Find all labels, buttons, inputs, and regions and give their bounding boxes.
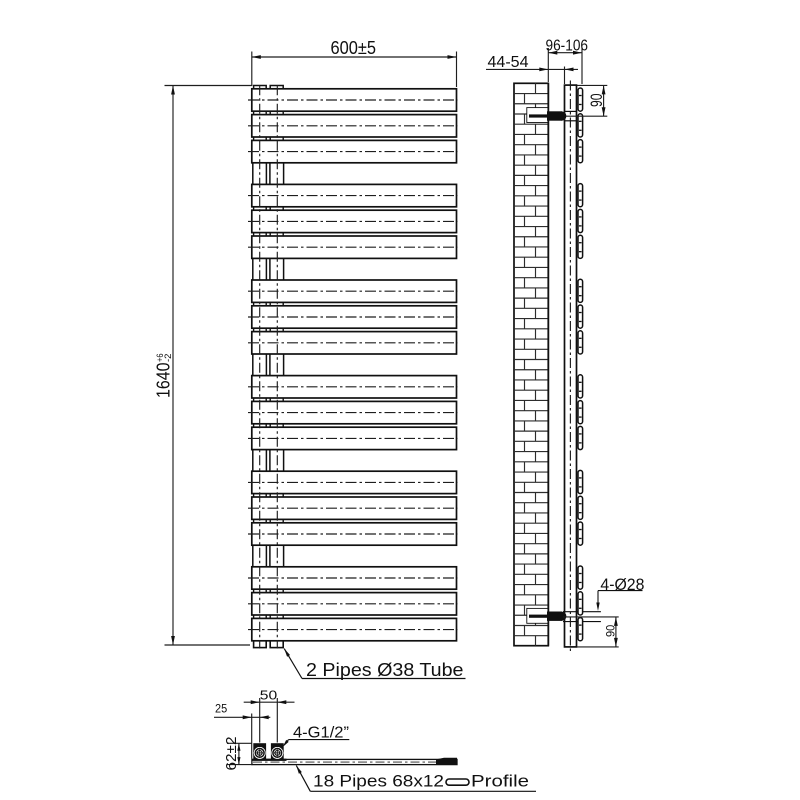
svg-text:-2: -2 [163,354,174,363]
svg-text:25: 25 [215,704,227,716]
svg-text:1640: 1640 [154,363,174,399]
svg-text:2 Pipes Ø38 Tube: 2 Pipes Ø38 Tube [306,660,464,680]
svg-text:62±2: 62±2 [224,737,240,771]
svg-text:600±5: 600±5 [331,38,377,58]
svg-text:Profile: Profile [471,772,529,791]
svg-text:4-G1/2”: 4-G1/2” [293,725,349,742]
svg-text:90: 90 [606,625,618,637]
svg-text:90: 90 [587,94,606,108]
svg-text:96-106: 96-106 [546,38,589,55]
svg-text:18 Pipes 68x12: 18 Pipes 68x12 [313,772,444,791]
svg-text:44-54: 44-54 [488,54,529,71]
svg-text:50: 50 [260,689,277,703]
